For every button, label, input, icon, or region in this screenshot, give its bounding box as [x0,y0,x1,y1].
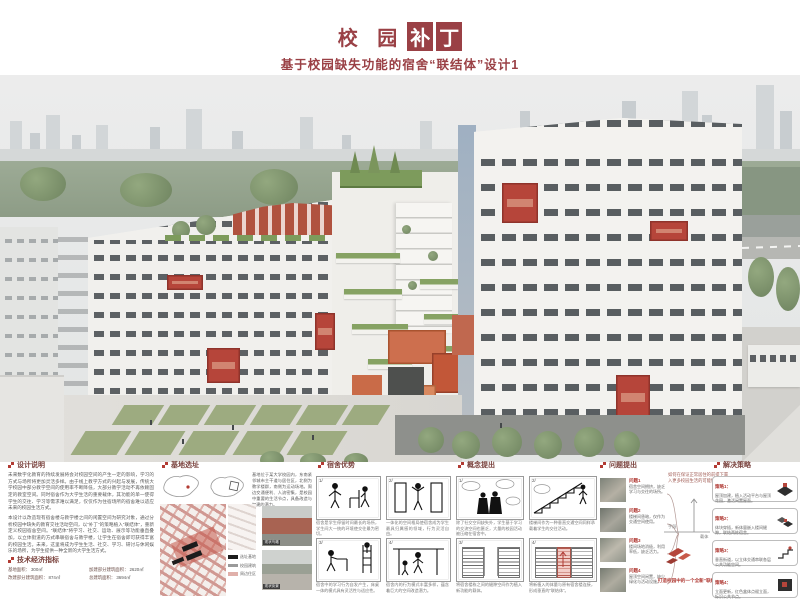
tree [534,431,562,459]
building-section-left [462,547,484,578]
section-title: 概念提出 [467,460,495,470]
section-marker-icon [600,462,606,468]
concept-diagram-box: 2/ [529,476,597,520]
advantage-diagram-box: 2/ [386,476,451,520]
concept-caption: 楼梯间作为一种垂直交通空间同样承载着学生的交往活动。 [529,520,595,531]
legend-label: 周边住区 [240,571,256,577]
section-title: 技术经济指标 [17,555,59,565]
map-legend: 选址基地 校园建筑 周边住区 [228,554,258,580]
building-section-right [498,547,520,578]
site-photo-1: 现状鸟瞰 [262,506,312,546]
strategy-card: 策略1：屋顶加建，植入活动平台与屋顶花园，激活闲置屋面。 [712,476,798,502]
concept-diagram-box: 3/ [456,538,524,582]
diagram-number: 3/ [459,540,463,545]
people-figure [182,439,184,444]
people-figure [500,423,502,428]
facade-renewal-icon [775,576,795,594]
green-terrace [336,253,400,263]
section-header-strategies: 解决策略 [714,460,751,470]
advantage-diagram-box: 4/ [386,538,451,582]
stat-label: 总建筑面积： [89,574,115,582]
strategy-label: 策略4： [715,580,731,585]
building-section-right [571,547,593,578]
advantage-caption: 一体化的空间格局使宿舍成为学生最具归属感的领域，行为灵活自由。 [386,520,449,537]
concept-caption: 将宿舍楼栋之间的缝隙空间作为植入新功能的载体。 [456,582,522,593]
plaza-left-wall [0,375,64,462]
tree [418,427,444,453]
section-header-problems: 问题提出 [600,460,637,470]
section-title: 基地选址 [171,460,199,470]
low-building [748,345,800,387]
axis-label-right: 载体 [700,534,708,540]
region-map-sketch [206,472,248,500]
diagram-number: 4/ [532,540,536,545]
facade-red-accent [616,375,650,420]
stat-row: 加建部分建筑面积：2620㎡ [89,566,158,574]
roof-tree [196,215,216,235]
title-patch-2: 丁 [436,22,462,51]
section-title: 设计说明 [17,460,45,470]
stat-row: 基地面积：300㎡ [8,566,83,574]
site-description: 基地位于某大学校园内，东南紧邻城市主干道与居住区，北侧为教学楼群，南侧为运动场地… [252,472,312,509]
green-terrace [344,289,402,299]
balcony-plant [428,251,438,261]
vertical-street-icon [775,544,795,562]
section-header-concept: 概念提出 [458,460,495,470]
right-building-facade [474,118,742,432]
china-map-sketch [160,472,202,500]
green-terrace [420,279,458,289]
diagram-number: 1/ [319,478,323,483]
strategy-label: 策略2： [715,516,731,521]
tech-index-col-2: 加建部分建筑面积：2620㎡ 总建筑面积：3694㎡ [89,566,158,582]
problem-photo-4 [600,568,626,592]
stat-label: 基地面积： [8,566,30,574]
orange-box [352,375,382,397]
tech-index-stats: 基地面积：300㎡ 改建部分建筑面积：874㎡ 加建部分建筑面积：2620㎡ 总… [8,566,158,582]
advantages-panel: 1/ 宿舍是学生停留时间最长的场所，学生间大一统的环境使交往最为密切。 2/ 一… [316,472,452,598]
section-marker-icon [8,462,14,468]
strategy-text: 屋顶加建，植入活动平台与屋顶花园，激活闲置屋面。 [715,493,773,504]
problem-text: 楼梯间昏暗，仅作为交通空间使用。 [629,514,665,525]
section-header-site: 基地选址 [162,460,199,470]
diagram-number: 4/ [389,540,393,545]
people-figure [312,435,314,440]
design-note-panel: 未来数字化教育的持续发展将会对校园空间的产生一定的影响，学习的方式与场所将更加灵… [8,472,154,554]
advantage-diagram-box: 1/ [316,476,381,520]
section-title: 解决策略 [723,460,751,470]
low-building-windows [750,355,798,362]
poster-board: 校 园补丁 基于校园缺失功能的宿舍“联结体”设计1 [0,0,800,600]
tree [20,167,66,201]
dorm-social-diagram [317,477,380,519]
title-main: 校 园 [338,28,405,50]
tree [452,431,480,459]
photo-caption: 现状街景 [263,584,280,589]
facade-red-accent [315,313,335,350]
section-title: 宿舍优势 [327,460,355,470]
dorm-behavior-diagram [387,539,450,581]
concept-diagram-box: 4/ [529,538,597,582]
facade-red-accent [650,221,688,241]
architectural-rendering [0,75,800,462]
stat-label: 加建部分建筑面积： [89,566,129,574]
diagram-number: 2/ [532,478,536,483]
tech-index-col-1: 基地面积：300㎡ 改建部分建筑面积：874㎡ [8,566,83,582]
volume-insert-icon [775,512,795,530]
section-marker-icon [8,557,14,563]
site-photo-2: 现状街景 [262,550,312,590]
section-header-advantages: 宿舍优势 [318,460,355,470]
tree [614,431,640,457]
dialogue-figures-diagram [457,477,523,519]
advantage-caption: 宿舍是学生停留时间最长的场所，学生间大一统的环境使交往最为密切。 [316,520,379,537]
section-title: 问题提出 [609,460,637,470]
right-building-side-face [458,125,476,432]
stat-value: 300㎡ [31,566,43,574]
dorm-study-diagram [317,539,380,581]
strategy-card: 策略4：立面更新，红色盒体点缀立面，标识公共节点。 [712,572,798,598]
problem-text: 楼间场地消极，利用率低，缺乏活力。 [629,544,665,555]
tree [260,451,284,462]
section-marker-icon [714,462,720,468]
design-note-paragraph-2: 本设计以改造现有宿舍楼与教学楼之间的闲置空间为研究对象，通过分析校园中缺失的教育… [8,515,154,555]
section-header-tech-index: 技术经济指标 [8,555,59,565]
roof-addition-icon [775,480,795,498]
tree [748,257,774,297]
problem-photo-3 [600,538,626,562]
facade-red-accent [502,183,538,223]
concept-diagram-box: 1/ [456,476,524,520]
stat-value: 874㎡ [49,574,61,582]
site-figure-ground-map [160,504,226,596]
concept-panel: 1/ 除了社交空间缺失外，学生基于学习的交流空间也匮乏，大量的校园活动被压缩在宿… [456,472,596,598]
stat-row: 改建部分建筑面积：874㎡ [8,574,83,582]
strategy-card: 策略2：体块穿插，新体量嵌入楼间缝隙，联结两栋宿舍。 [712,508,798,534]
strategy-text: 体块穿插，新体量嵌入楼间缝隙，联结两栋宿舍。 [715,525,773,536]
problem-item: 问题3 楼间场地消极，利用率低，缺乏活力。 [629,538,665,555]
problem-item: 问题1 宿舍空间拥挤，缺乏学习与交往的场所。 [629,478,665,495]
balcony-plant [408,281,417,290]
stat-label: 改建部分建筑面积： [8,574,48,582]
legend-swatch-black [228,555,238,559]
section-marker-icon [318,462,324,468]
building-section-left [535,547,557,578]
stat-value: 2620㎡ [129,566,143,574]
tree [250,169,298,205]
advantage-caption: 宿舍中的学习行为自发产生，床桌一体的模式具有灵活性与适应性。 [316,582,379,593]
upward-arrow-icon [558,549,568,569]
facade-orange-accent [452,315,474,355]
tree [776,267,800,311]
people-figure [150,420,152,425]
axis-label-left: 手段 [668,524,676,530]
advantage-caption: 宿舍内的行为模式丰富多样，蕴含着巨大的空间改造潜力。 [386,582,449,593]
diagram-number: 1/ [459,478,463,483]
legend-row: 校园建筑 [228,563,258,569]
legend-label: 校园建筑 [240,563,256,569]
roof-planters [165,235,332,241]
photo-caption: 现状鸟瞰 [263,540,280,545]
site-map-fragment [228,504,256,550]
red-axon-building-icon [666,548,691,564]
design-note-paragraph-1: 未来数字化教育的持续发展将会对校园空间的产生一定的影响，学习的方式与场所将更加灵… [8,472,154,512]
strategies-panel: 策略1：屋顶加建，植入活动平台与屋顶花园，激活闲置屋面。 策略2：体块穿插，新体… [712,472,798,598]
diagram-number: 3/ [319,540,323,545]
strategy-text: 立面更新，红色盒体点缀立面，标识公共节点。 [715,589,773,600]
advantage-diagram-box: 3/ [316,538,381,582]
axis-diagram [664,490,710,576]
legend-row: 选址基地 [228,554,258,560]
site-panel: 基地位于某大学校园内，东南紧邻城市主干道与居住区，北侧为教学楼群，南侧为运动场地… [160,470,312,600]
page-subtitle: 基于校园缺失功能的宿舍“联结体”设计1 [0,54,800,73]
strategy-label: 策略3： [715,548,731,553]
section-marker-icon [458,462,464,468]
legend-swatch-pink [228,572,238,576]
concept-caption: 将新植入的体量与原有宿舍楼连接，形成垂直的“联结体”。 [529,582,595,593]
diagram-number: 2/ [389,478,393,483]
problem-photo-1 [600,478,626,502]
page-title: 校 园补丁 [0,22,800,51]
stat-row: 总建筑面积：3694㎡ [89,574,158,582]
legend-label: 选址基地 [240,554,256,560]
staircase-diagram [530,477,596,519]
balcony-plant [402,225,411,234]
facade-red-accent [167,275,203,290]
stat-value: 3694㎡ [116,574,130,582]
tree [492,427,522,457]
strategy-text: 垂直街道，以立体交通串联各层公共功能空间。 [715,557,773,568]
concept-caption: 除了社交空间缺失外，学生基于学习的交流空间也匮乏，大量的校园活动被压缩在宿舍中。 [456,520,522,537]
gap-space [484,547,498,576]
strategy-card: 策略3：垂直街道，以立体交通串联各层公共功能空间。 [712,540,798,566]
tree [120,173,172,207]
dark-courtyard [395,415,745,455]
problem-text: 宿舍空间拥挤，缺乏学习与交往的场所。 [629,484,665,495]
tree [574,427,604,457]
problem-item: 问题2 楼梯间昏暗，仅作为交通空间使用。 [629,508,665,525]
problem-photo-2 [600,508,626,532]
legend-row: 周边住区 [228,571,258,577]
title-patch-1: 补 [407,22,433,51]
dorm-territory-diagram [387,477,450,519]
section-header-design-note: 设计说明 [8,460,45,470]
section-marker-icon [162,462,168,468]
poster-header: 校 园补丁 基于校园缺失功能的宿舍“联结体”设计1 [0,22,800,73]
people-figure [232,425,234,430]
legend-swatch-gray [228,564,238,568]
strategy-label: 策略1： [715,484,731,489]
facade-red-accent [207,348,240,383]
